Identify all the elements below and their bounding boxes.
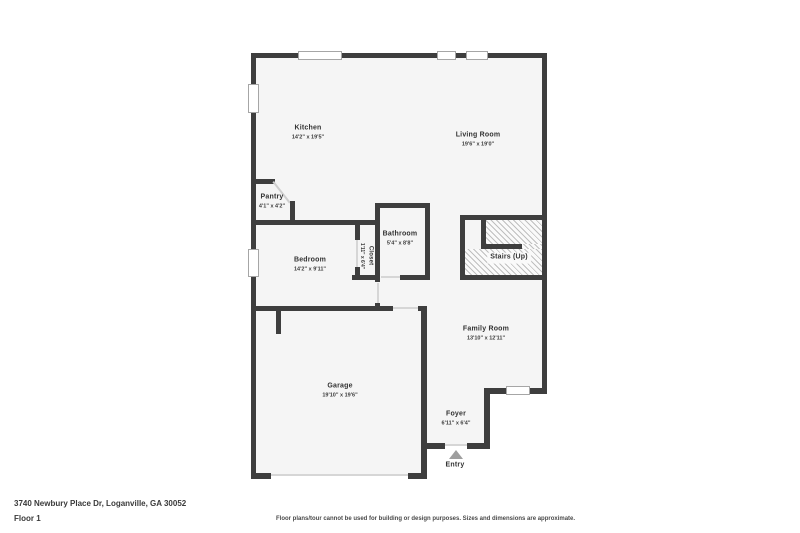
room-name: Bedroom: [294, 257, 326, 266]
bedroom-door: [377, 283, 379, 303]
wall-segment: [484, 388, 490, 449]
room-name: Entry: [446, 462, 465, 471]
wall-segment: [481, 244, 522, 249]
wall-segment: [276, 306, 281, 334]
room-dims: 5'4" x 8'8": [383, 240, 418, 247]
room-dims: 14'2" x 19'5": [292, 134, 324, 141]
bedroom-window: [248, 249, 259, 277]
room-name: Pantry: [259, 194, 285, 203]
wall-segment: [251, 473, 271, 479]
room-label-foyer: Foyer 6'11" x 6'4": [442, 411, 471, 428]
property-address: 3740 Newbury Place Dr, Loganville, GA 30…: [14, 499, 186, 508]
room-label-family-room: Family Room 13'10" x 12'11": [463, 326, 509, 343]
kitchen-top-window: [298, 51, 342, 60]
family-room-window: [506, 386, 530, 395]
room-label-entry: Entry: [446, 462, 465, 471]
room-label-kitchen: Kitchen 14'2" x 19'5": [292, 125, 324, 142]
wall-segment: [251, 220, 380, 225]
room-label-bathroom: Bathroom 5'4" x 8'8": [383, 231, 418, 248]
wall-segment: [375, 203, 380, 280]
room-dims: 1'11" x 6'4": [359, 243, 365, 269]
wall-segment: [421, 443, 445, 449]
wall-segment: [251, 306, 393, 311]
room-label-closet: Closet 1'11" x 6'4": [359, 243, 374, 269]
bathroom-door: [381, 276, 400, 278]
wall-segment: [375, 203, 430, 208]
wall-segment: [460, 215, 465, 280]
room-dims: 4'1" x 4'2": [259, 203, 285, 210]
room-name: Foyer: [442, 411, 471, 420]
garage-entry-door: [393, 307, 418, 309]
room-label-garage: Garage 19'10" x 19'6": [322, 383, 357, 400]
wall-segment: [400, 275, 430, 280]
wall-segment: [460, 275, 547, 280]
entry-opening: [445, 444, 467, 446]
wall-segment: [421, 306, 427, 479]
wall-segment: [342, 53, 437, 58]
living-room-window-1: [437, 51, 456, 60]
kitchen-side-window: [248, 84, 259, 113]
wall-segment: [251, 53, 298, 58]
room-name: Stairs (Up): [487, 253, 531, 264]
wall-segment: [355, 225, 360, 240]
floor-plan-page: Kitchen 14'2" x 19'5" Living Room 19'6" …: [0, 0, 800, 533]
living-room-window-2: [466, 51, 488, 60]
room-name: Living Room: [456, 132, 501, 141]
garage-door: [271, 474, 408, 476]
wall-segment: [251, 53, 256, 86]
room-label-stairs: Stairs (Up): [487, 253, 531, 264]
room-label-living-room: Living Room 19'6" x 19'0": [456, 132, 501, 149]
room-dims: 19'10" x 19'6": [322, 392, 357, 399]
room-dims: 13'10" x 12'11": [463, 335, 509, 342]
disclaimer-text: Floor plans/tour cannot be used for buil…: [276, 516, 575, 522]
stairs-hatch-upper: [486, 220, 542, 244]
wall-segment: [375, 278, 380, 282]
wall-segment: [425, 203, 430, 280]
room-name: Kitchen: [292, 125, 324, 134]
room-label-pantry: Pantry 4'1" x 4'2": [259, 194, 285, 211]
room-dims: 14'2" x 9'11": [294, 266, 326, 273]
floor-label: Floor 1: [14, 514, 41, 523]
room-name: Bathroom: [383, 231, 418, 240]
room-name: Family Room: [463, 326, 509, 335]
wall-segment: [530, 388, 547, 394]
wall-segment: [460, 215, 547, 220]
wall-segment: [408, 473, 427, 479]
wall-segment: [488, 53, 547, 58]
wall-segment: [456, 53, 466, 58]
room-name: Closet: [366, 243, 374, 269]
room-label-bedroom: Bedroom 14'2" x 9'11": [294, 257, 326, 274]
entry-arrow-icon: [449, 450, 463, 459]
wall-segment: [467, 443, 490, 449]
wall-segment: [542, 53, 547, 394]
room-name: Garage: [322, 383, 357, 392]
room-dims: 6'11" x 6'4": [442, 420, 471, 427]
room-dims: 19'6" x 19'0": [456, 141, 501, 148]
